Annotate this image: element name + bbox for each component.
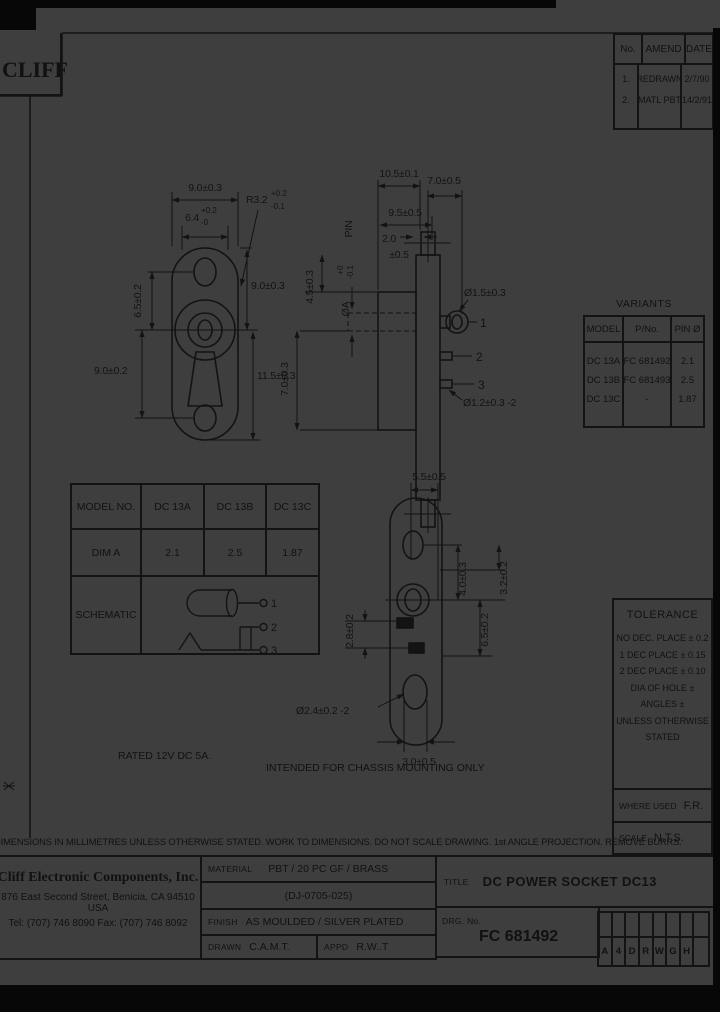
revision-col-amend: REDRAWN MATL PBT [639, 65, 682, 130]
issue-grid-cell [694, 913, 708, 938]
revision-col-no: 1. 2. [615, 65, 639, 130]
scan-edge-bottom [0, 985, 720, 1012]
side-pin-2-label: 2 [476, 350, 483, 364]
issue-grid-letter [694, 938, 708, 965]
dim-front-width-inner: 6.4 [185, 212, 199, 224]
issue-grid-cell [654, 913, 668, 938]
footer-note: DIMENSIONS IN MILLIMETRES UNLESS OTHERWI… [0, 837, 682, 847]
revision-table-header: No. AMEND DATE [615, 35, 712, 65]
variants-cell: FC 681492 [624, 356, 671, 375]
scan-edge-top-left [0, 0, 36, 30]
mounting-note: INTENDED FOR CHASSIS MOUNTING ONLY [266, 762, 485, 774]
issue-grid-letter: D [626, 938, 640, 965]
model-dim-a: 2.1 [142, 530, 205, 577]
drg-label: DRG. No. [442, 916, 598, 926]
dim-front-pitch-upper: 6.5±0.2 [132, 284, 144, 318]
dim-side-holes: Ø1.2±0.3 -2 [463, 397, 517, 409]
variants-header-model: MODEL [585, 317, 624, 341]
variants-cell: DC 13B [587, 375, 620, 394]
dim-front-height-upper: 9.0±0.3 [251, 280, 285, 292]
issue-grid-letter: R [640, 938, 654, 965]
front-view-dim-lines [135, 192, 260, 440]
dim-bottom-right-outer: 3.2±0.2 [498, 561, 510, 595]
material-code-row: (DJ-0705-025) [202, 883, 437, 910]
dim-side-flange-tol: ±0.5 [389, 249, 409, 261]
model-header-b: DC 13B [205, 485, 267, 530]
drg-number: FC 681492 [479, 928, 598, 946]
bottom-view-outline [390, 498, 442, 745]
dim-side-flange: 2.0 [382, 233, 396, 245]
dim-side-pin-dia-tol-minus: -0.1 [346, 265, 355, 279]
bottom-view: 5.5±0.5 3.2±0.2 6.5±0.2 4.0±0.3 2.8±0.2 … [296, 471, 510, 768]
material-row: MATERIAL PBT / 20 PC GF / BRASS [202, 855, 437, 883]
variants-cell: DC 13A [587, 356, 620, 375]
issue-grid-cell [640, 913, 654, 938]
dim-front-width-inner-tol-plus: +0.2 [201, 206, 217, 215]
issue-grid-letter: H [681, 938, 695, 965]
variants-cell: 2.5 [681, 375, 694, 394]
revision-table: No. AMEND DATE 1. 2. REDRAWN MATL PBT 2/… [613, 33, 714, 130]
variants-cell: FC 681493 [624, 375, 671, 394]
model-table: MODEL NO. DC 13A DC 13B DC 13C DIM A 2.1… [70, 483, 320, 655]
dim-front-pitch-lower: 9.0±0.2 [94, 365, 128, 377]
cliff-logo-text: CLIFF [2, 57, 68, 82]
dim-bottom-right-mid: 6.5±0.2 [479, 613, 491, 647]
variants-col-pin: 2.1 2.5 1.87 [672, 343, 703, 428]
dim-front-radius: R3.2 [246, 194, 268, 206]
drawing-sheet: 9.0±0.3 6.4 +0.2 -0 R3.2 +0.2 -0.1 6.5±0… [0, 0, 720, 1012]
where-used-value: F.R. [684, 800, 704, 812]
appd-cell: APPD R.W..T [318, 936, 435, 958]
tolerance-line: 2 DEC PLACE ± 0.10 [614, 666, 711, 683]
dim-bottom-left: 2.8±0.2 [344, 614, 356, 648]
dim-bottom-width-top: 5.5±0.5 [412, 471, 446, 483]
finish-label: FINISH [208, 917, 238, 927]
issue-grid-cell [667, 913, 681, 938]
variants-col-model: DC 13A DC 13B DC 13C [585, 343, 624, 428]
dim-side-pin-dia-tol-plus: +0 [336, 265, 345, 275]
variants-header-pno: P/No. [624, 317, 672, 341]
tolerance-box: TOLERANCE NO DEC. PLACE ± 0.2 1 DEC PLAC… [612, 598, 713, 855]
variants-table: VARIANTS MODEL P/No. PIN Ø DC 13A DC 13B… [583, 298, 705, 428]
model-header-label: MODEL NO. [72, 485, 142, 530]
cliff-logo: CLIFF [0, 33, 62, 96]
dim-bottom-right-inner: 4.0±0.3 [457, 562, 469, 596]
model-header-a: DC 13A [142, 485, 205, 530]
company-address: 876 East Second Street, Benicia, CA 9451… [0, 892, 200, 914]
material-label: MATERIAL [208, 864, 252, 874]
revision-row-date: 2/7/90 [684, 74, 709, 84]
dim-front-radius-tol-minus: -0.1 [271, 202, 285, 211]
appd-label: APPD [324, 942, 348, 952]
drawn-row: DRAWN C.A.M.T. APPD R.W..T [202, 936, 437, 960]
issue-grid-letter: A [599, 938, 613, 965]
tolerance-title: TOLERANCE [614, 609, 711, 621]
issue-grid-letter: G [667, 938, 681, 965]
issue-grid-letter: 4 [613, 938, 627, 965]
side-pin-label: PIN [343, 221, 355, 238]
material-value: PBT / 20 PC GF / BRASS [268, 863, 388, 875]
finish-value: AS MOULDED / SILVER PLATED [246, 916, 404, 928]
where-used-row: WHERE USED F.R. [614, 788, 711, 821]
company-block: Cliff Electronic Components, Inc. 876 Ea… [0, 855, 202, 960]
revision-header-date: DATE [686, 35, 712, 63]
model-header-c: DC 13C [267, 485, 318, 530]
dim-front-width-inner-tol-minus: -0 [201, 218, 209, 227]
material-code: (DJ-0705-025) [285, 890, 353, 902]
issue-grid: A 4 D R W G H [597, 911, 710, 967]
issue-grid-cell [613, 913, 627, 938]
revision-row-no: 2. [622, 95, 630, 105]
model-dim-label: DIM A [72, 530, 142, 577]
scan-edge-top [0, 0, 556, 8]
issue-grid-cell [599, 913, 613, 938]
dim-side-height-left: 7.0±0.3 [279, 362, 291, 396]
dim-side-pin-length: 7.0±0.5 [427, 175, 461, 187]
dim-side-pin-dia: ØA [340, 301, 352, 316]
variants-col-pno: FC 681492 FC 681493 - [624, 343, 672, 428]
dim-front-radius-tol-plus: +0.2 [271, 189, 287, 198]
drawn-value: C.A.M.T. [249, 941, 289, 953]
where-used-label: WHERE USED [619, 801, 677, 811]
dim-front-width-outer: 9.0±0.3 [188, 182, 222, 194]
revision-row-amend: REDRAWN [636, 74, 682, 84]
dim-side-body-length: 9.5±0.5 [388, 207, 422, 219]
variants-cell: DC 13C [587, 394, 621, 413]
revision-header-amend: AMEND [643, 35, 686, 63]
appd-value: R.W..T [356, 941, 388, 953]
issue-grid-cell [626, 913, 640, 938]
tolerance-lines: NO DEC. PLACE ± 0.2 1 DEC PLACE ± 0.15 2… [614, 633, 711, 749]
finish-row: FINISH AS MOULDED / SILVER PLATED [202, 910, 437, 936]
tolerance-line: NO DEC. PLACE ± 0.2 [614, 633, 711, 650]
tolerance-line: STATED [614, 732, 711, 749]
tolerance-line: 1 DEC PLACE ± 0.15 [614, 650, 711, 667]
model-schematic-label: SCHEMATIC [72, 577, 142, 653]
sheet-border [0, 33, 714, 838]
dim-side-length-total: 10.5±0.1 [379, 168, 419, 180]
drg-section: DRG. No. FC 681492 [437, 908, 600, 958]
revision-row-amend: MATL PBT [638, 95, 681, 105]
variants-header-pin: PIN Ø [672, 317, 703, 341]
variants-cell: - [645, 394, 648, 413]
scan-mark [3, 782, 15, 790]
dim-bottom-holes: Ø2.4±0.2 -2 [296, 705, 350, 717]
dim-side-height-upper: 4.5±0.3 [304, 270, 316, 304]
revision-row-date: 14/2/91 [682, 95, 712, 105]
revision-header-no: No. [615, 35, 643, 63]
tolerance-line: UNLESS OTHERWISE [614, 716, 711, 733]
tolerance-line: ANGLES ± [614, 699, 711, 716]
model-dim-c: 1.87 [267, 530, 318, 577]
issue-grid-letter: W [654, 938, 668, 965]
tolerance-line: DIA OF HOLE ± [614, 683, 711, 700]
drawn-cell: DRAWN C.A.M.T. [202, 936, 318, 958]
variants-header: MODEL P/No. PIN Ø [585, 317, 703, 343]
side-pin-3-label: 3 [478, 378, 485, 392]
model-dim-b: 2.5 [205, 530, 267, 577]
revision-row-no: 1. [622, 74, 630, 84]
variants-cell: 2.1 [681, 356, 694, 375]
dim-side-eyelet: Ø1.5±0.3 [464, 287, 506, 299]
scan-edge-right [713, 28, 720, 1012]
company-phone: Tel: (707) 746 8090 Fax: (707) 746 8092 [0, 918, 200, 929]
side-pin-1-label: 1 [480, 316, 487, 330]
front-view-outline [172, 248, 238, 440]
title-section: TITLE DC POWER SOCKET DC13 [437, 855, 713, 908]
drawn-label: DRAWN [208, 942, 241, 952]
side-view: 10.5±0.1 7.0±0.5 9.5±0.5 2.0 ±0.5 PIN +0… [279, 168, 517, 533]
issue-grid-cell [681, 913, 695, 938]
title-label: TITLE [444, 877, 469, 887]
model-schematic-cell [142, 577, 318, 653]
variants-cell: 1.87 [678, 394, 697, 413]
rating-note: RATED 12V DC 5A. [118, 750, 211, 762]
front-view: 9.0±0.3 6.4 +0.2 -0 R3.2 +0.2 -0.1 6.5±0… [94, 182, 296, 440]
variants-title: VARIANTS [583, 298, 705, 310]
company-name: Cliff Electronic Components, Inc. [0, 870, 200, 886]
drawing-title: DC POWER SOCKET DC13 [483, 874, 657, 889]
revision-col-date: 2/7/90 14/2/91 [682, 65, 712, 130]
